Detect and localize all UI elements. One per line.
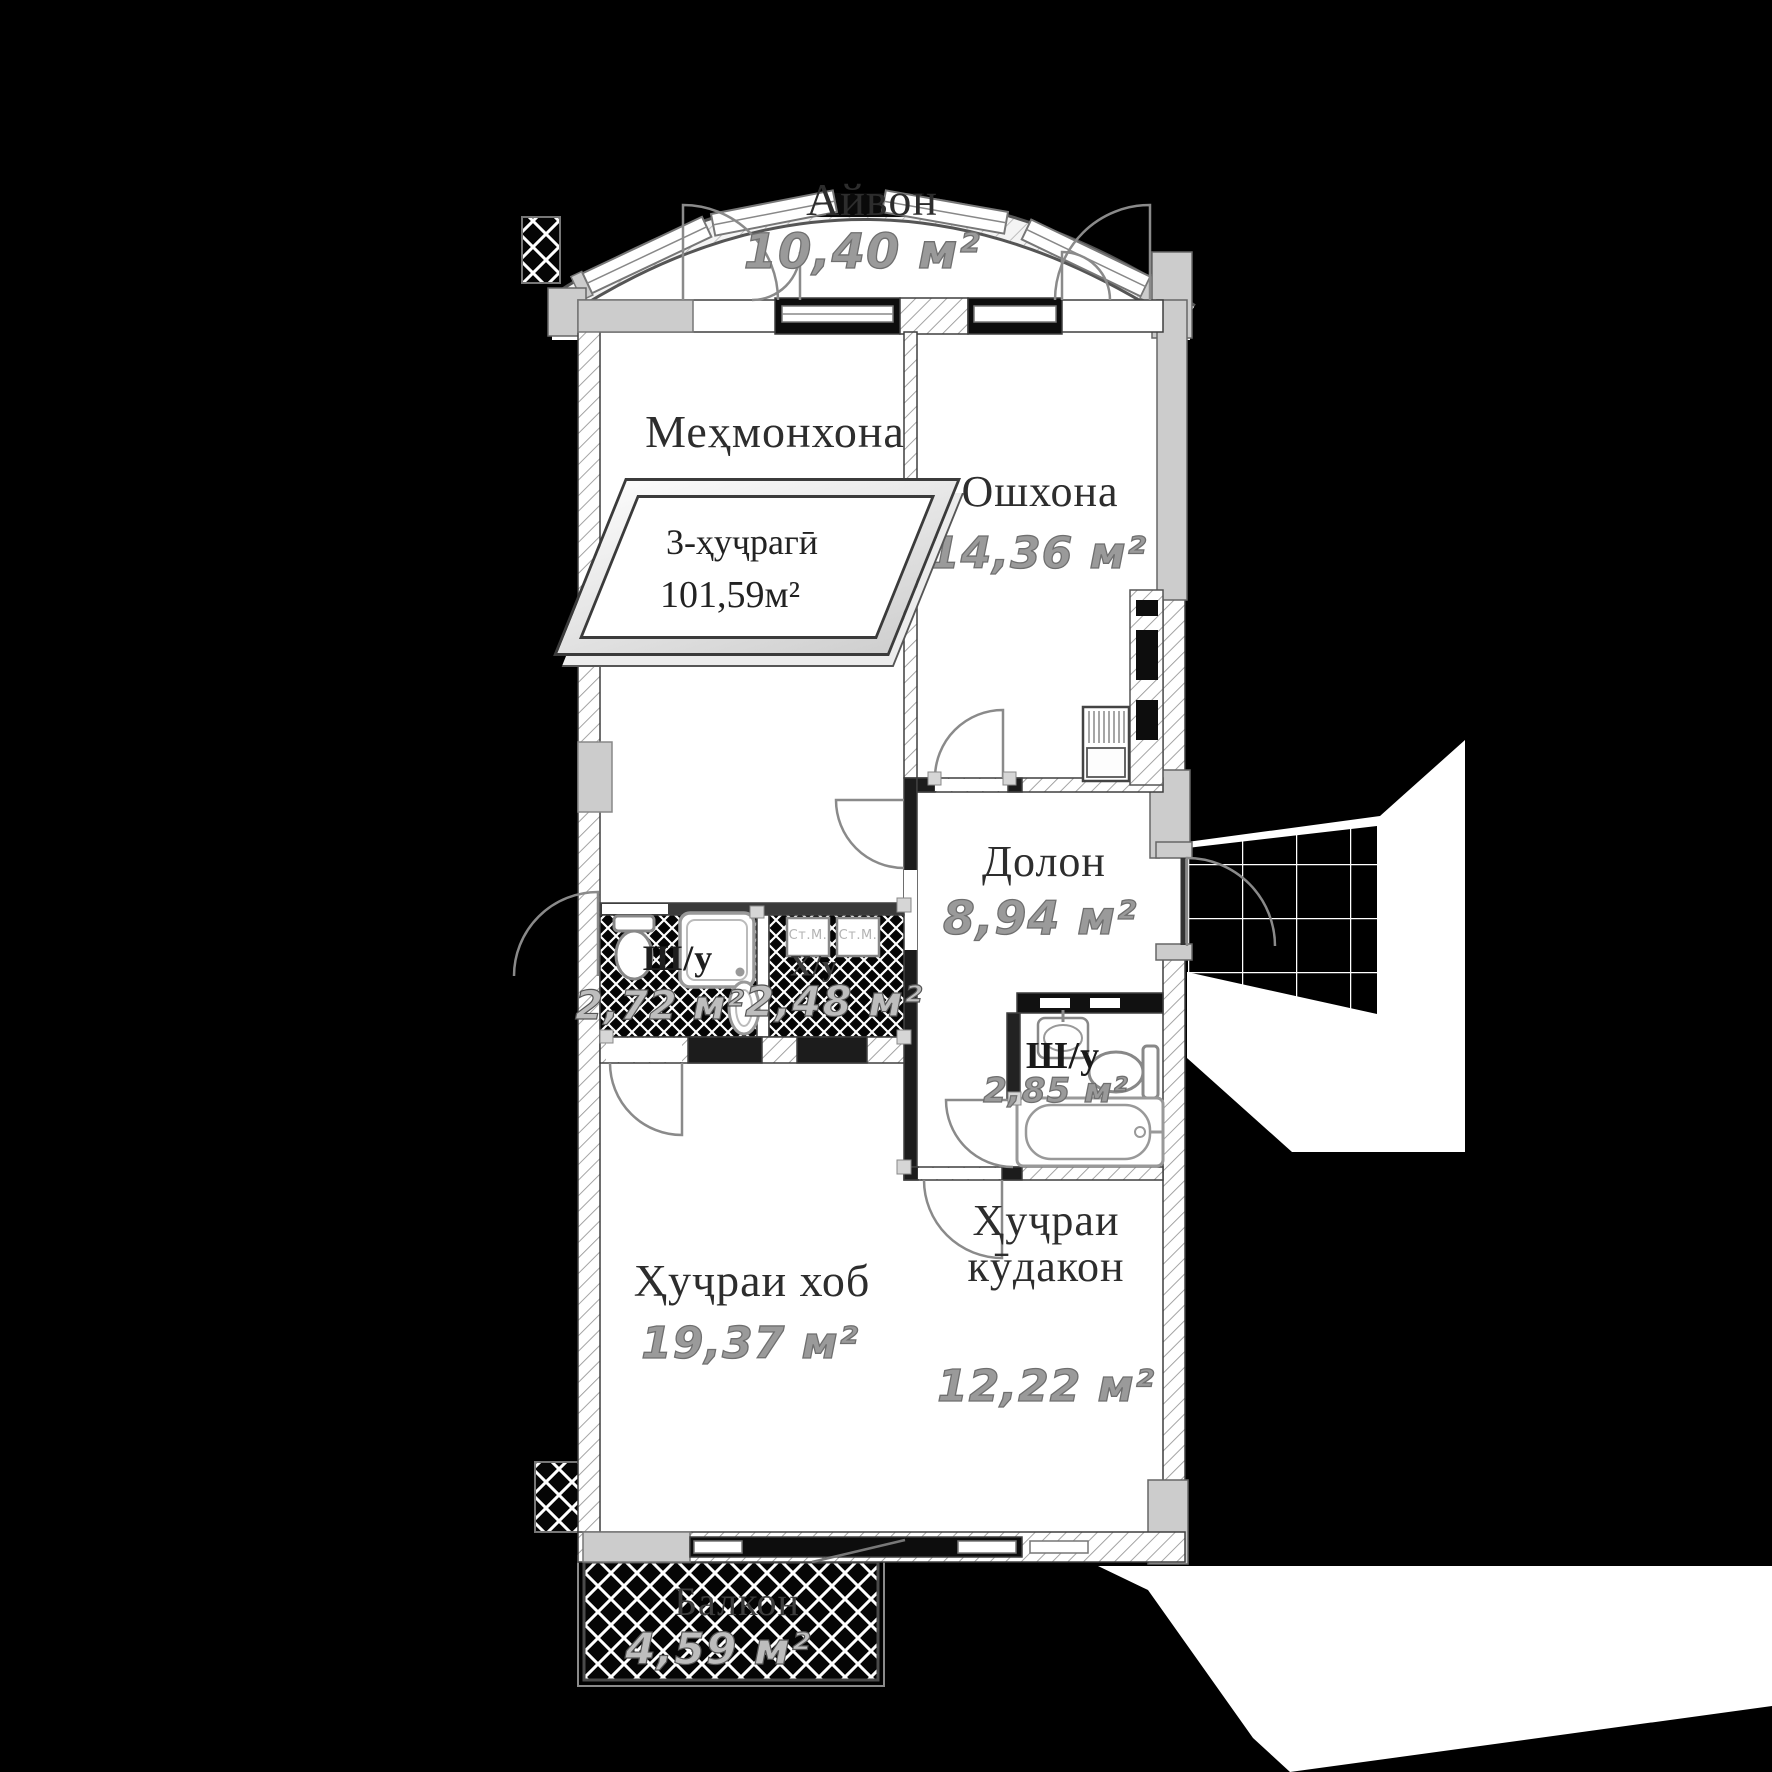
balcony-area: 4,59 м² — [625, 1627, 811, 1673]
laundry-area: 2,48 м² — [745, 980, 923, 1024]
veranda-name: Айвон — [806, 176, 938, 224]
bedroom-area: 19,37 м² — [641, 1321, 859, 1367]
kitchen-area: 14,36 м² — [929, 531, 1147, 577]
kitchen-name: Ошхона — [961, 469, 1118, 515]
stamp-type-label: 3-ҳуҷрагӣ — [666, 524, 818, 562]
apartment-type-stamp — [553, 478, 961, 656]
kids-room-name-line1: Ҳуҷраи — [968, 1198, 1125, 1244]
floor-plan-canvas: Айвон 10,40 м² Меҳмонхона 23,66 м² Ошхон… — [0, 0, 1772, 1772]
hall-area: 8,94 м² — [943, 894, 1137, 942]
veranda-area: 10,40 м² — [744, 227, 981, 277]
stamp-total-area: 101,59м² — [660, 576, 800, 616]
kids-room-area: 12,22 м² — [937, 1364, 1155, 1410]
balcony-name: Балкон — [674, 1581, 800, 1623]
bedroom-name: Ҳуҷраи хоб — [634, 1257, 871, 1305]
bath-left-name: Ш/у — [643, 940, 714, 978]
bath-left-area: 2,72 м² — [575, 985, 745, 1027]
facade-detail-boxes — [522, 217, 583, 1532]
washing-machine-label-right: Ст.М. — [839, 929, 878, 943]
washing-machine-label-left: Ст.М. — [789, 929, 828, 943]
kids-room-name-line2: кӯдакон — [968, 1244, 1125, 1290]
stairwell-landing — [1187, 740, 1465, 1152]
stamp-inner-frame — [579, 495, 935, 639]
stove-fixture — [1083, 707, 1129, 781]
bath-right-area: 2,85 м² — [983, 1074, 1128, 1110]
background-cutout — [1098, 1566, 1772, 1772]
kids-room-name: Ҳуҷраи кӯдакон — [968, 1198, 1125, 1290]
hall-name: Долон — [982, 839, 1106, 885]
living-room-name: Меҳмонхона — [645, 408, 905, 456]
